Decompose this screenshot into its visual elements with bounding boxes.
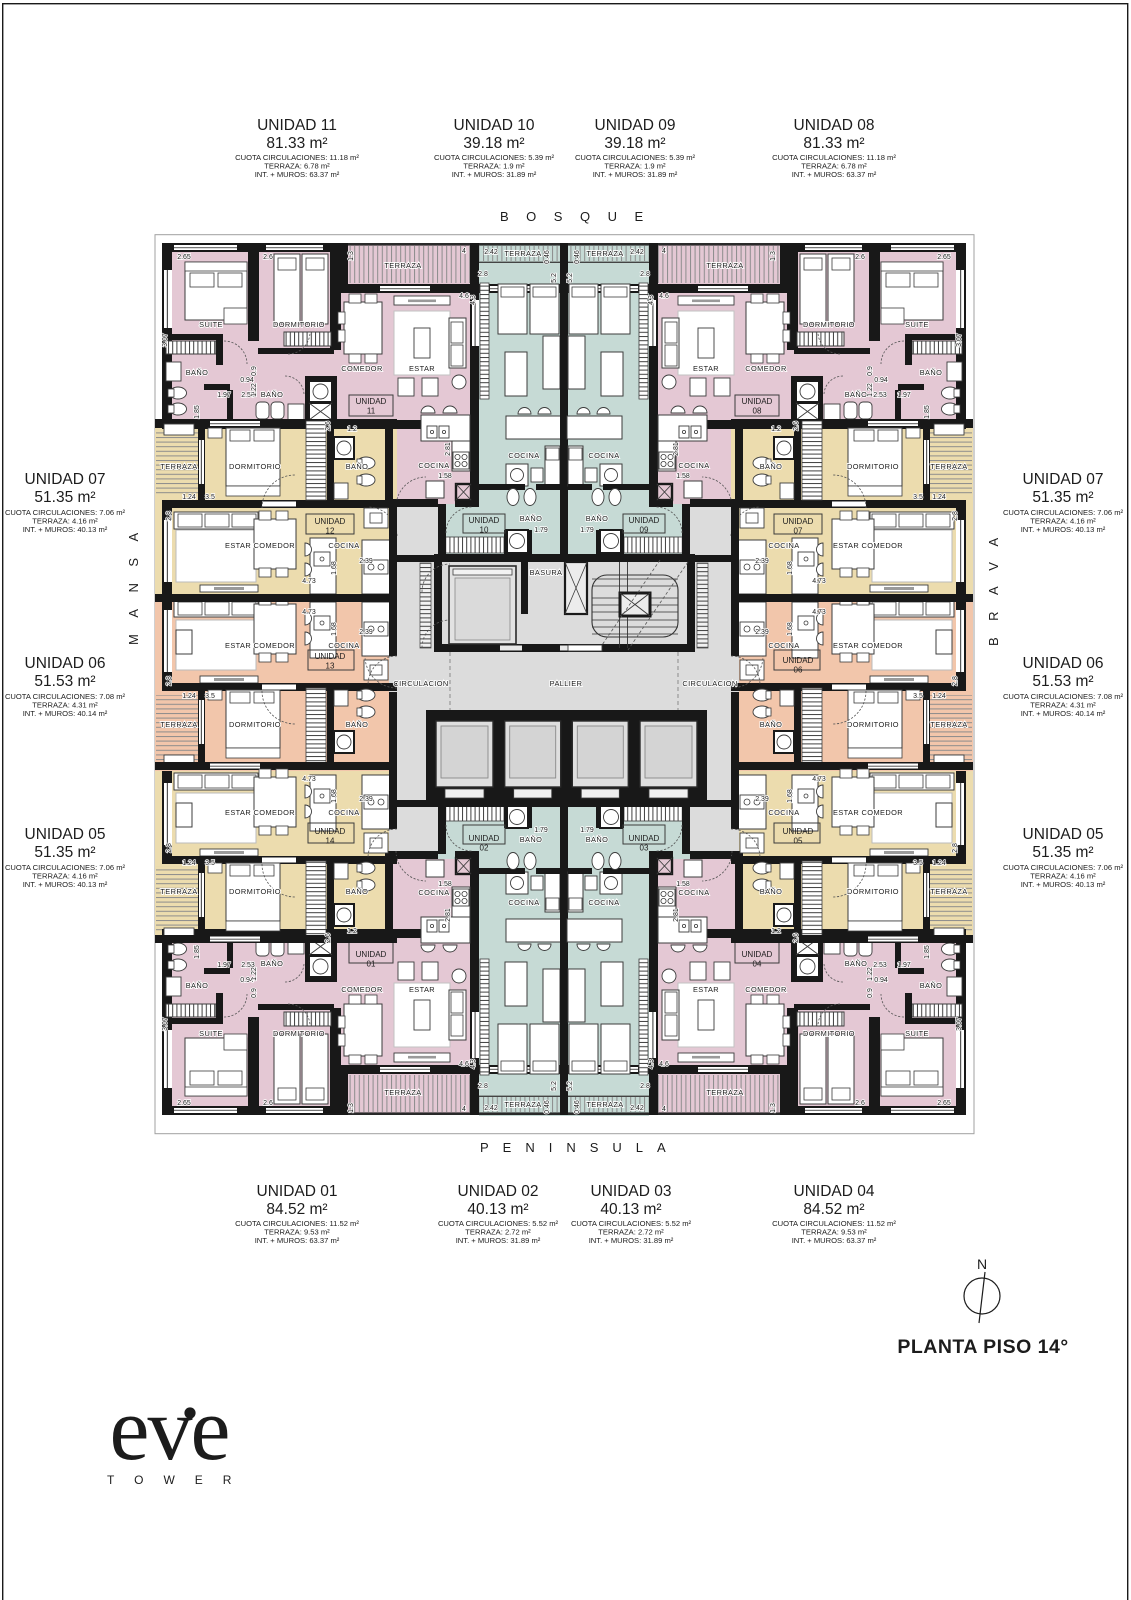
svg-text:3.5: 3.5 [205, 494, 215, 501]
svg-text:DORMITORIO: DORMITORIO [803, 320, 855, 329]
svg-text:08: 08 [753, 407, 762, 416]
svg-text:2.39: 2.39 [359, 796, 373, 803]
svg-text:2.6: 2.6 [855, 1100, 865, 1107]
svg-text:TERRAZA: TERRAZA [706, 261, 743, 270]
svg-text:0.9: 0.9 [867, 366, 874, 376]
svg-text:3.07: 3.07 [162, 333, 169, 347]
svg-text:1.22: 1.22 [251, 967, 258, 981]
svg-text:INT. + MUROS: 40.13 m²: INT. + MUROS: 40.13 m² [1021, 880, 1106, 889]
svg-text:INT. + MUROS: 31.89 m²: INT. + MUROS: 31.89 m² [593, 170, 678, 179]
svg-text:2.6: 2.6 [793, 933, 800, 943]
svg-text:COCINA: COCINA [768, 808, 799, 817]
svg-text:COCINA: COCINA [508, 898, 539, 907]
svg-text:2.6: 2.6 [263, 254, 273, 261]
svg-text:PENINSULA: PENINSULA [480, 1140, 680, 1155]
svg-text:84.52 m²: 84.52 m² [803, 1201, 864, 1218]
svg-text:2.42: 2.42 [484, 1105, 498, 1112]
svg-text:BAÑO: BAÑO [760, 720, 783, 729]
svg-text:UNIDAD: UNIDAD [469, 834, 500, 843]
svg-text:1.2: 1.2 [347, 426, 357, 433]
svg-text:06: 06 [794, 666, 803, 675]
svg-text:02: 02 [480, 844, 489, 853]
svg-text:84.52 m²: 84.52 m² [266, 1201, 327, 1218]
svg-text:3.07: 3.07 [956, 333, 963, 347]
svg-text:UNIDAD: UNIDAD [742, 397, 773, 406]
svg-text:2.39: 2.39 [755, 558, 769, 565]
svg-text:09: 09 [640, 526, 649, 535]
svg-text:1.3: 1.3 [348, 1103, 355, 1113]
svg-text:3.5: 3.5 [913, 494, 923, 501]
svg-text:2.8: 2.8 [952, 843, 959, 853]
svg-text:BAÑO: BAÑO [186, 368, 209, 377]
svg-text:40.13 m²: 40.13 m² [467, 1201, 528, 1218]
svg-text:2.81: 2.81 [673, 442, 680, 456]
svg-text:BAÑO: BAÑO [346, 887, 369, 896]
svg-text:1.68: 1.68 [787, 622, 794, 636]
svg-text:TERRAZA: TERRAZA [504, 1100, 541, 1109]
svg-text:INT. + MUROS: 40.14 m²: INT. + MUROS: 40.14 m² [23, 709, 108, 718]
svg-text:UNIDAD 06: UNIDAD 06 [1023, 655, 1104, 672]
svg-text:BAÑO: BAÑO [845, 390, 868, 399]
svg-text:TERRAZA: TERRAZA [384, 1088, 421, 1097]
svg-text:BAÑO: BAÑO [186, 981, 209, 990]
svg-text:UNIDAD: UNIDAD [742, 950, 773, 959]
svg-text:INT. + MUROS: 63.37 m²: INT. + MUROS: 63.37 m² [255, 170, 340, 179]
svg-text:3.5: 3.5 [913, 693, 923, 700]
svg-text:1.68: 1.68 [787, 789, 794, 803]
svg-text:1.22: 1.22 [867, 967, 874, 981]
svg-text:BAÑO: BAÑO [586, 514, 609, 523]
svg-text:ESTAR COMEDOR: ESTAR COMEDOR [833, 641, 903, 650]
svg-text:07: 07 [794, 527, 803, 536]
svg-text:1.79: 1.79 [580, 827, 594, 834]
svg-text:4.73: 4.73 [302, 578, 316, 585]
svg-text:1.2: 1.2 [347, 928, 357, 935]
svg-text:2.8: 2.8 [952, 676, 959, 686]
svg-text:1.85: 1.85 [194, 405, 201, 419]
svg-text:1.22: 1.22 [251, 383, 258, 397]
svg-text:2.6: 2.6 [263, 1100, 273, 1107]
svg-text:TERRAZA: TERRAZA [930, 462, 967, 471]
svg-text:ESTAR: ESTAR [693, 364, 719, 373]
svg-text:0.9: 0.9 [867, 988, 874, 998]
svg-text:1.68: 1.68 [331, 622, 338, 636]
svg-text:UNIDAD 09: UNIDAD 09 [595, 117, 676, 134]
svg-text:5.2: 5.2 [567, 273, 574, 283]
svg-text:5.2: 5.2 [567, 1081, 574, 1091]
svg-text:2.65: 2.65 [177, 254, 191, 261]
svg-text:4.6: 4.6 [459, 1061, 469, 1068]
svg-text:BAÑO: BAÑO [760, 887, 783, 896]
svg-text:1.68: 1.68 [331, 789, 338, 803]
svg-text:2.8: 2.8 [640, 1083, 650, 1090]
svg-text:COCINA: COCINA [768, 641, 799, 650]
svg-text:COCINA: COCINA [678, 888, 709, 897]
svg-text:COCINA: COCINA [328, 641, 359, 650]
svg-text:TERRAZA: TERRAZA [160, 887, 197, 896]
svg-text:1.97: 1.97 [217, 392, 231, 399]
svg-text:TERRAZA: TERRAZA [160, 720, 197, 729]
svg-text:TOWER: TOWER [107, 1473, 251, 1487]
svg-text:ESTAR COMEDOR: ESTAR COMEDOR [225, 541, 295, 550]
svg-text:BAÑO: BAÑO [520, 835, 543, 844]
svg-text:BOSQUE: BOSQUE [500, 209, 661, 224]
svg-text:1.22: 1.22 [867, 383, 874, 397]
svg-text:3.07: 3.07 [162, 1017, 169, 1031]
svg-text:UNIDAD: UNIDAD [356, 950, 387, 959]
svg-text:INT. + MUROS: 63.37 m²: INT. + MUROS: 63.37 m² [792, 1236, 877, 1245]
svg-text:1.79: 1.79 [534, 827, 548, 834]
svg-text:10: 10 [480, 526, 489, 535]
svg-text:UNIDAD 03: UNIDAD 03 [591, 1183, 672, 1200]
svg-text:UNIDAD 05: UNIDAD 05 [1023, 826, 1104, 843]
svg-text:UNIDAD 08: UNIDAD 08 [794, 117, 875, 134]
svg-text:12: 12 [326, 527, 335, 536]
svg-text:BAÑO: BAÑO [346, 462, 369, 471]
svg-text:UNIDAD 02: UNIDAD 02 [458, 1183, 539, 1200]
svg-text:1.68: 1.68 [787, 561, 794, 575]
svg-text:BASURA: BASURA [530, 568, 563, 577]
svg-text:BAÑO: BAÑO [520, 514, 543, 523]
svg-text:4.6: 4.6 [659, 293, 669, 300]
svg-text:4.73: 4.73 [302, 609, 316, 616]
svg-text:1.58: 1.58 [676, 881, 690, 888]
svg-text:2.39: 2.39 [359, 558, 373, 565]
svg-text:CIRCULACION: CIRCULACION [393, 679, 448, 688]
svg-text:UNIDAD 05: UNIDAD 05 [25, 826, 106, 843]
svg-text:5.2: 5.2 [551, 273, 558, 283]
svg-text:1.24: 1.24 [182, 494, 196, 501]
svg-text:3.5: 3.5 [205, 860, 215, 867]
svg-text:DORMITORIO: DORMITORIO [847, 887, 899, 896]
svg-text:INT. + MUROS: 63.37 m²: INT. + MUROS: 63.37 m² [792, 170, 877, 179]
svg-text:4: 4 [462, 248, 466, 255]
svg-text:UNIDAD: UNIDAD [783, 827, 814, 836]
svg-text:BAÑO: BAÑO [586, 835, 609, 844]
svg-text:1.2: 1.2 [771, 928, 781, 935]
svg-text:UNIDAD 11: UNIDAD 11 [257, 117, 337, 134]
svg-text:5.2: 5.2 [551, 1081, 558, 1091]
svg-text:UNIDAD 07: UNIDAD 07 [25, 471, 106, 488]
svg-text:UNIDAD: UNIDAD [356, 397, 387, 406]
svg-text:1.2: 1.2 [771, 426, 781, 433]
svg-text:BAÑO: BAÑO [920, 368, 943, 377]
svg-text:ESTAR COMEDOR: ESTAR COMEDOR [833, 541, 903, 550]
svg-text:2.65: 2.65 [177, 1100, 191, 1107]
svg-text:INT. + MUROS: 31.89 m²: INT. + MUROS: 31.89 m² [452, 170, 537, 179]
svg-text:81.33 m²: 81.33 m² [803, 135, 864, 152]
svg-text:COMEDOR: COMEDOR [745, 364, 786, 373]
svg-text:0.94: 0.94 [874, 377, 888, 384]
svg-text:2.53: 2.53 [873, 392, 887, 399]
svg-text:81.33 m²: 81.33 m² [266, 135, 327, 152]
svg-text:BAÑO: BAÑO [261, 390, 284, 399]
svg-text:1.85: 1.85 [924, 405, 931, 419]
svg-text:2.39: 2.39 [359, 629, 373, 636]
svg-text:1.79: 1.79 [580, 527, 594, 534]
svg-text:0.9: 0.9 [251, 366, 258, 376]
svg-text:4: 4 [662, 248, 666, 255]
svg-text:0.94: 0.94 [240, 377, 254, 384]
svg-text:SUITE: SUITE [905, 1029, 929, 1038]
svg-text:2.8: 2.8 [166, 511, 173, 521]
svg-text:DORMITORIO: DORMITORIO [273, 1029, 325, 1038]
svg-text:4.3: 4.3 [648, 1059, 655, 1069]
svg-text:4.3: 4.3 [470, 295, 477, 305]
svg-text:COCINA: COCINA [768, 541, 799, 550]
svg-text:DORMITORIO: DORMITORIO [803, 1029, 855, 1038]
svg-text:COCINA: COCINA [418, 888, 449, 897]
svg-text:COCINA: COCINA [328, 808, 359, 817]
svg-text:COCINA: COCINA [588, 451, 619, 460]
svg-text:05: 05 [794, 837, 803, 846]
svg-text:2.6: 2.6 [325, 421, 332, 431]
svg-text:UNIDAD: UNIDAD [315, 517, 346, 526]
svg-text:4.6: 4.6 [459, 293, 469, 300]
svg-text:ESTAR COMEDOR: ESTAR COMEDOR [225, 641, 295, 650]
svg-text:TERRAZA: TERRAZA [384, 261, 421, 270]
svg-text:2.39: 2.39 [755, 629, 769, 636]
svg-text:0.46: 0.46 [574, 1100, 581, 1114]
svg-text:4.3: 4.3 [648, 295, 655, 305]
svg-text:COMEDOR: COMEDOR [341, 364, 382, 373]
svg-text:ESTAR COMEDOR: ESTAR COMEDOR [833, 808, 903, 817]
svg-text:51.35 m²: 51.35 m² [1032, 844, 1093, 861]
svg-text:39.18 m²: 39.18 m² [604, 135, 665, 152]
svg-text:INT. + MUROS: 40.13 m²: INT. + MUROS: 40.13 m² [1021, 525, 1106, 534]
svg-text:1.97: 1.97 [217, 962, 231, 969]
svg-text:UNIDAD: UNIDAD [315, 827, 346, 836]
svg-text:COCINA: COCINA [588, 898, 619, 907]
svg-text:4: 4 [662, 1106, 666, 1113]
svg-text:1.24: 1.24 [932, 494, 946, 501]
svg-text:TERRAZA: TERRAZA [706, 1088, 743, 1097]
svg-text:INT. + MUROS: 40.13 m²: INT. + MUROS: 40.13 m² [23, 525, 108, 534]
svg-text:COCINA: COCINA [678, 461, 709, 470]
svg-text:2.8: 2.8 [952, 511, 959, 521]
svg-text:COMEDOR: COMEDOR [745, 985, 786, 994]
svg-text:1.24: 1.24 [932, 693, 946, 700]
svg-text:0.46: 0.46 [574, 250, 581, 264]
svg-text:PALLIER: PALLIER [550, 679, 583, 688]
svg-text:BRAVA: BRAVA [986, 521, 1001, 646]
svg-text:1.3: 1.3 [770, 251, 777, 261]
svg-text:TERRAZA: TERRAZA [586, 249, 623, 258]
svg-text:2.42: 2.42 [630, 249, 644, 256]
svg-text:4.6: 4.6 [659, 1061, 669, 1068]
svg-text:1.58: 1.58 [438, 473, 452, 480]
svg-text:SUITE: SUITE [905, 320, 929, 329]
svg-text:UNIDAD: UNIDAD [629, 516, 660, 525]
svg-text:UNIDAD 01: UNIDAD 01 [257, 1183, 338, 1200]
svg-text:TERRAZA: TERRAZA [160, 462, 197, 471]
svg-text:SUITE: SUITE [199, 1029, 223, 1038]
svg-text:UNIDAD 07: UNIDAD 07 [1023, 471, 1104, 488]
svg-text:BAÑO: BAÑO [760, 462, 783, 471]
svg-text:BAÑO: BAÑO [346, 720, 369, 729]
svg-text:TERRAZA: TERRAZA [930, 720, 967, 729]
svg-text:ESTAR: ESTAR [693, 985, 719, 994]
svg-text:UNIDAD: UNIDAD [469, 516, 500, 525]
svg-text:COCINA: COCINA [418, 461, 449, 470]
svg-text:01: 01 [367, 960, 376, 969]
svg-text:INT. + MUROS: 31.89 m²: INT. + MUROS: 31.89 m² [456, 1236, 541, 1245]
svg-text:2.81: 2.81 [445, 442, 452, 456]
svg-text:4.3: 4.3 [470, 1059, 477, 1069]
svg-text:51.53 m²: 51.53 m² [1032, 673, 1093, 690]
svg-text:2.6: 2.6 [855, 254, 865, 261]
svg-text:1.24: 1.24 [182, 860, 196, 867]
svg-text:04: 04 [753, 960, 762, 969]
svg-text:DORMITORIO: DORMITORIO [847, 462, 899, 471]
svg-text:UNIDAD 04: UNIDAD 04 [794, 1183, 875, 1200]
svg-text:1.97: 1.97 [897, 392, 911, 399]
svg-text:1.3: 1.3 [348, 251, 355, 261]
svg-text:BAÑO: BAÑO [920, 981, 943, 990]
svg-text:INT. + MUROS: 40.13 m²: INT. + MUROS: 40.13 m² [23, 880, 108, 889]
svg-text:14: 14 [326, 837, 335, 846]
svg-text:UNIDAD: UNIDAD [783, 656, 814, 665]
svg-text:DORMITORIO: DORMITORIO [229, 887, 281, 896]
svg-text:2.42: 2.42 [630, 1105, 644, 1112]
svg-text:4.73: 4.73 [812, 609, 826, 616]
svg-text:ESTAR: ESTAR [409, 364, 435, 373]
svg-text:3.5: 3.5 [913, 860, 923, 867]
svg-text:2.6: 2.6 [793, 421, 800, 431]
svg-text:51.35 m²: 51.35 m² [34, 489, 95, 506]
svg-text:03: 03 [640, 844, 649, 853]
svg-text:BAÑO: BAÑO [261, 959, 284, 968]
svg-text:1.97: 1.97 [897, 962, 911, 969]
svg-text:1.24: 1.24 [182, 693, 196, 700]
svg-text:COMEDOR: COMEDOR [341, 985, 382, 994]
svg-text:DORMITORIO: DORMITORIO [229, 462, 281, 471]
svg-text:4: 4 [462, 1106, 466, 1113]
svg-text:11: 11 [367, 407, 376, 416]
svg-text:39.18 m²: 39.18 m² [463, 135, 524, 152]
svg-text:4.73: 4.73 [812, 578, 826, 585]
svg-text:COCINA: COCINA [508, 451, 539, 460]
svg-text:3.5: 3.5 [205, 693, 215, 700]
svg-text:2.8: 2.8 [478, 1083, 488, 1090]
svg-text:TERRAZA: TERRAZA [586, 1100, 623, 1109]
svg-text:MANSA: MANSA [126, 516, 141, 645]
svg-text:40.13 m²: 40.13 m² [600, 1201, 661, 1218]
svg-text:INT. + MUROS: 40.14 m²: INT. + MUROS: 40.14 m² [1021, 709, 1106, 718]
svg-text:ESTAR COMEDOR: ESTAR COMEDOR [225, 808, 295, 817]
svg-text:4.73: 4.73 [302, 776, 316, 783]
svg-text:UNIDAD: UNIDAD [315, 652, 346, 661]
svg-text:DORMITORIO: DORMITORIO [273, 320, 325, 329]
svg-text:UNIDAD: UNIDAD [783, 517, 814, 526]
svg-text:1.58: 1.58 [676, 473, 690, 480]
svg-text:1.3: 1.3 [770, 1103, 777, 1113]
svg-text:2.42: 2.42 [484, 249, 498, 256]
svg-text:BAÑO: BAÑO [845, 959, 868, 968]
svg-text:51.35 m²: 51.35 m² [34, 844, 95, 861]
svg-text:51.53 m²: 51.53 m² [34, 673, 95, 690]
svg-text:2.81: 2.81 [673, 908, 680, 922]
svg-text:1.24: 1.24 [932, 860, 946, 867]
svg-text:1.85: 1.85 [924, 945, 931, 959]
svg-text:4.73: 4.73 [812, 776, 826, 783]
svg-text:TERRAZA: TERRAZA [504, 249, 541, 258]
svg-text:2.8: 2.8 [478, 271, 488, 278]
svg-text:2.39: 2.39 [755, 796, 769, 803]
svg-text:PLANTA PISO 14°: PLANTA PISO 14° [897, 1336, 1068, 1358]
svg-text:2.8: 2.8 [166, 843, 173, 853]
svg-text:ESTAR: ESTAR [409, 985, 435, 994]
svg-text:2.8: 2.8 [166, 676, 173, 686]
svg-text:0.46: 0.46 [544, 250, 551, 264]
svg-text:2.65: 2.65 [937, 254, 951, 261]
svg-text:UNIDAD 06: UNIDAD 06 [25, 655, 106, 672]
svg-text:2.53: 2.53 [873, 962, 887, 969]
svg-text:1.85: 1.85 [194, 945, 201, 959]
svg-text:COCINA: COCINA [328, 541, 359, 550]
svg-text:13: 13 [326, 662, 335, 671]
svg-text:2.65: 2.65 [937, 1100, 951, 1107]
svg-text:CIRCULACION: CIRCULACION [682, 679, 737, 688]
svg-text:1.68: 1.68 [331, 561, 338, 575]
svg-text:eve: eve [110, 1380, 229, 1479]
svg-text:SUITE: SUITE [199, 320, 223, 329]
svg-text:1.58: 1.58 [438, 881, 452, 888]
svg-text:DORMITORIO: DORMITORIO [229, 720, 281, 729]
svg-text:TERRAZA: TERRAZA [930, 887, 967, 896]
svg-text:INT. + MUROS: 31.89 m²: INT. + MUROS: 31.89 m² [589, 1236, 674, 1245]
svg-text:2.8: 2.8 [640, 271, 650, 278]
svg-text:UNIDAD: UNIDAD [629, 834, 660, 843]
svg-text:2.6: 2.6 [325, 933, 332, 943]
svg-text:51.35 m²: 51.35 m² [1032, 489, 1093, 506]
svg-text:DORMITORIO: DORMITORIO [847, 720, 899, 729]
svg-text:UNIDAD 10: UNIDAD 10 [454, 117, 535, 134]
svg-text:INT. + MUROS: 63.37 m²: INT. + MUROS: 63.37 m² [255, 1236, 340, 1245]
svg-text:N: N [977, 1256, 987, 1272]
svg-text:0.94: 0.94 [874, 977, 888, 984]
svg-text:0.9: 0.9 [251, 988, 258, 998]
svg-text:3.07: 3.07 [956, 1017, 963, 1031]
svg-text:2.81: 2.81 [445, 908, 452, 922]
svg-text:0.46: 0.46 [544, 1100, 551, 1114]
svg-text:1.79: 1.79 [534, 527, 548, 534]
